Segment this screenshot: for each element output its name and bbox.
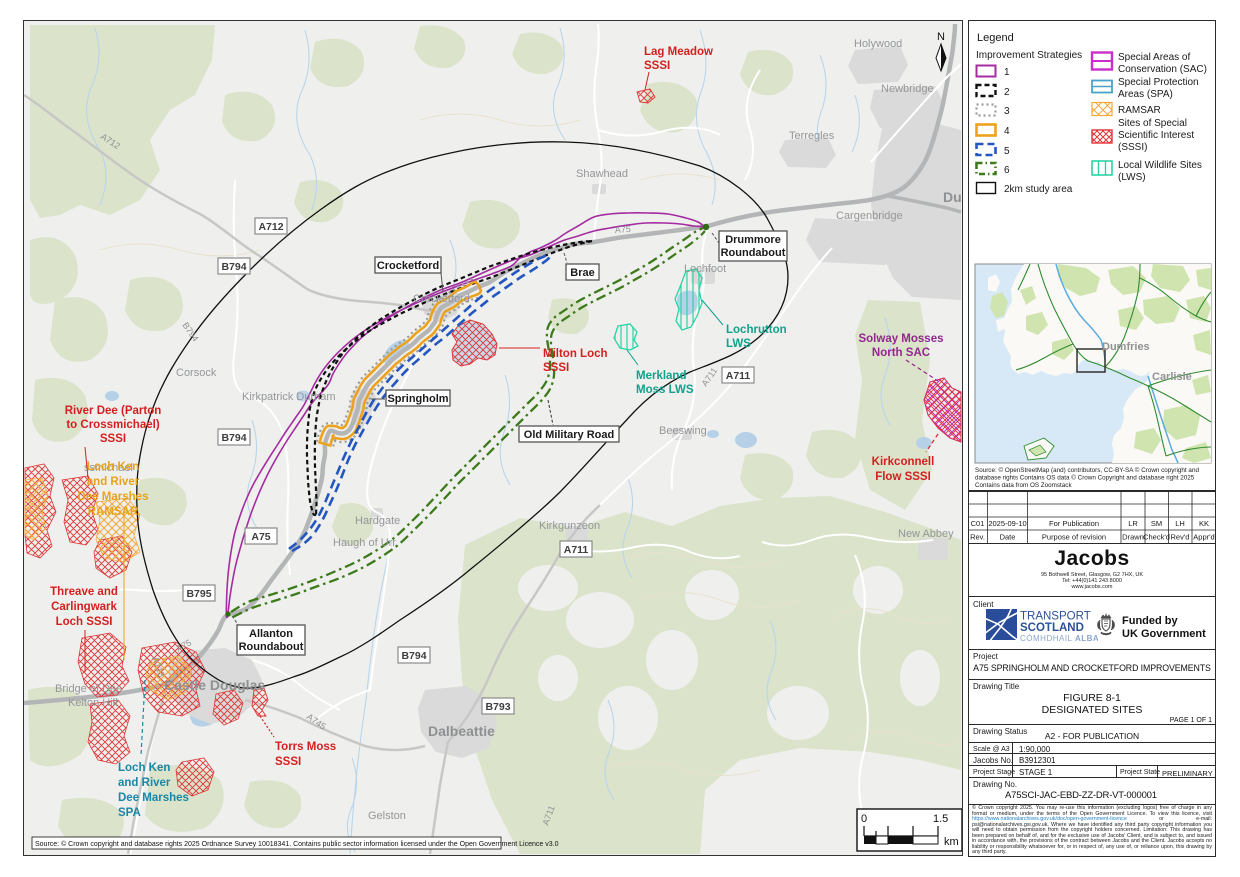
- svg-text:LH: LH: [1175, 519, 1185, 528]
- svg-text:Drummore: Drummore: [725, 234, 781, 246]
- svg-text:North SAC: North SAC: [872, 347, 930, 359]
- svg-text:Scientific Interest: Scientific Interest: [1118, 130, 1194, 141]
- svg-text:Source: © OpenStreetMap (and): Source: © OpenStreetMap (and) contributo…: [975, 466, 1199, 474]
- svg-text:km: km: [944, 836, 959, 848]
- svg-text:Check'd: Check'd: [1143, 533, 1170, 542]
- svg-text:Rev.: Rev.: [970, 533, 985, 542]
- svg-text:Moss LWS: Moss LWS: [636, 384, 694, 396]
- svg-text:database rights Contains OS da: database rights Contains OS data © Crown…: [975, 474, 1195, 482]
- svg-text:Kelton Hill: Kelton Hill: [68, 697, 118, 709]
- svg-text:Haugh of Urr: Haugh of Urr: [333, 537, 396, 549]
- svg-text:Beeswing: Beeswing: [659, 425, 707, 437]
- svg-text:Corsock: Corsock: [176, 367, 217, 379]
- svg-text:Drawn: Drawn: [1122, 533, 1144, 542]
- svg-text:B794: B794: [401, 650, 426, 662]
- svg-text:Threave and: Threave and: [50, 586, 118, 598]
- svg-text:New Abbey: New Abbey: [898, 528, 954, 540]
- svg-text:2: 2: [1004, 87, 1010, 98]
- svg-text:Source: © Crown copyright and: Source: © Crown copyright and database r…: [35, 840, 559, 848]
- svg-text:3: 3: [1004, 106, 1010, 117]
- svg-text:4: 4: [1004, 126, 1010, 137]
- svg-text:RAMSAR: RAMSAR: [88, 506, 139, 518]
- svg-text:Holywood: Holywood: [854, 38, 902, 50]
- svg-text:C01: C01: [971, 519, 985, 528]
- svg-text:1.5: 1.5: [933, 813, 948, 825]
- svg-text:Date: Date: [1000, 533, 1016, 542]
- svg-text:N: N: [937, 31, 945, 43]
- svg-text:SSSI: SSSI: [644, 60, 670, 72]
- svg-text:A712: A712: [258, 221, 283, 233]
- svg-text:Springholm: Springholm: [387, 393, 448, 405]
- svg-text:SM: SM: [1151, 519, 1162, 528]
- svg-text:UK Government: UK Government: [1122, 628, 1206, 640]
- svg-text:Local Wildlife Sites: Local Wildlife Sites: [1118, 160, 1202, 171]
- svg-text:SPA: SPA: [118, 807, 141, 819]
- svg-text:SSSI: SSSI: [543, 362, 569, 374]
- svg-text:LWS: LWS: [726, 338, 751, 350]
- svg-text:and River: and River: [118, 777, 171, 789]
- svg-text:to Crossmichael): to Crossmichael): [66, 419, 159, 431]
- svg-text:6: 6: [1004, 165, 1010, 176]
- svg-text:Kirkgunzeon: Kirkgunzeon: [539, 520, 600, 532]
- svg-text:Brae: Brae: [570, 267, 594, 279]
- svg-text:Loch Ken: Loch Ken: [118, 762, 170, 774]
- svg-text:Torrs Moss: Torrs Moss: [275, 741, 336, 753]
- svg-text:0: 0: [861, 813, 867, 825]
- svg-text:Dumfries: Dumfries: [1102, 341, 1150, 353]
- svg-text:Purpose of revision: Purpose of revision: [1042, 533, 1106, 542]
- svg-text:Carlisle: Carlisle: [1152, 371, 1192, 383]
- svg-text:Allanton: Allanton: [249, 628, 293, 640]
- svg-text:1: 1: [1004, 67, 1010, 78]
- svg-text:Loch Ken: Loch Ken: [87, 461, 139, 473]
- svg-text:Areas (SPA): Areas (SPA): [1118, 89, 1173, 100]
- svg-text:Newbridge: Newbridge: [881, 83, 934, 95]
- svg-text:Shawhead: Shawhead: [576, 168, 628, 180]
- svg-text:TRANSPORT: TRANSPORT: [1020, 611, 1091, 623]
- svg-text:Roundabout: Roundabout: [239, 641, 304, 653]
- svg-text:5: 5: [1004, 146, 1010, 157]
- svg-text:Special Areas of: Special Areas of: [1118, 52, 1190, 63]
- svg-text:Lochrutton: Lochrutton: [726, 324, 787, 336]
- svg-text:SSSI: SSSI: [275, 756, 301, 768]
- svg-text:KK: KK: [1199, 519, 1209, 528]
- svg-text:Contains data from OS Zoomstac: Contains data from OS Zoomstack: [975, 482, 1072, 489]
- svg-text:Loch SSSI: Loch SSSI: [56, 616, 113, 628]
- svg-text:LR: LR: [1128, 519, 1138, 528]
- svg-text:B793: B793: [485, 701, 510, 713]
- svg-text:Castle Douglas: Castle Douglas: [164, 677, 265, 693]
- svg-text:A75: A75: [614, 224, 631, 235]
- svg-text:SCOTLAND: SCOTLAND: [1020, 622, 1084, 634]
- svg-text:Lag Meadow: Lag Meadow: [644, 46, 713, 58]
- svg-text:Crocketford: Crocketford: [413, 293, 470, 305]
- svg-text:Crocketford: Crocketford: [377, 260, 439, 272]
- svg-text:Gelston: Gelston: [368, 810, 406, 822]
- svg-text:Bridge of Dee: Bridge of Dee: [55, 683, 122, 695]
- svg-text:B794: B794: [221, 261, 246, 273]
- svg-text:A711: A711: [726, 370, 751, 382]
- svg-text:Dalbeattie: Dalbeattie: [428, 723, 495, 739]
- svg-text:Kirkpatrick Durham: Kirkpatrick Durham: [242, 391, 336, 403]
- svg-text:Flow SSSI: Flow SSSI: [875, 471, 931, 483]
- svg-text:Sites of Special: Sites of Special: [1118, 118, 1187, 129]
- svg-text:Funded by: Funded by: [1122, 615, 1178, 627]
- svg-text:Special Protection: Special Protection: [1118, 77, 1199, 88]
- svg-text:2025-09-10: 2025-09-10: [988, 519, 1026, 528]
- svg-text:(LWS): (LWS): [1118, 172, 1146, 183]
- svg-text:Terregles: Terregles: [789, 130, 835, 142]
- svg-text:For Publication: For Publication: [1049, 519, 1099, 528]
- svg-text:Merkland: Merkland: [636, 370, 687, 382]
- svg-text:Hardgate: Hardgate: [355, 515, 400, 527]
- svg-text:B795: B795: [186, 588, 211, 600]
- svg-text:Conservation (SAC): Conservation (SAC): [1118, 64, 1207, 75]
- svg-text:Old Military Road: Old Military Road: [524, 429, 614, 441]
- svg-text:Rev'd: Rev'd: [1171, 533, 1190, 542]
- svg-text:Du: Du: [943, 189, 962, 205]
- svg-text:Improvement Strategies: Improvement Strategies: [976, 50, 1082, 61]
- svg-text:RAMSAR: RAMSAR: [1118, 105, 1161, 116]
- svg-text:Legend: Legend: [977, 32, 1014, 44]
- svg-text:Roundabout: Roundabout: [721, 247, 786, 259]
- svg-text:A711: A711: [564, 544, 589, 556]
- svg-text:A75: A75: [251, 531, 270, 543]
- svg-text:River Dee (Parton: River Dee (Parton: [65, 405, 162, 417]
- svg-text:(SSSI): (SSSI): [1118, 142, 1147, 153]
- svg-text:Appr'd: Appr'd: [1193, 533, 1214, 542]
- svg-text:Lochfoot: Lochfoot: [684, 263, 726, 275]
- svg-text:Dee Marshes: Dee Marshes: [118, 792, 189, 804]
- svg-text:Kirkconnell: Kirkconnell: [872, 456, 935, 468]
- svg-text:Carlingwark: Carlingwark: [51, 601, 117, 613]
- svg-text:Solway Mosses: Solway Mosses: [858, 333, 943, 345]
- svg-text:Dee Marshes: Dee Marshes: [78, 491, 149, 503]
- svg-text:B794: B794: [221, 432, 246, 444]
- svg-text:SSSI: SSSI: [100, 433, 126, 445]
- svg-text:Cargenbridge: Cargenbridge: [836, 210, 903, 222]
- svg-text:CÒMHDHAIL ALBA: CÒMHDHAIL ALBA: [1020, 634, 1098, 643]
- svg-text:and River: and River: [87, 476, 140, 488]
- svg-text:2km study area: 2km study area: [1004, 184, 1073, 195]
- svg-text:Milton Loch: Milton Loch: [543, 348, 608, 360]
